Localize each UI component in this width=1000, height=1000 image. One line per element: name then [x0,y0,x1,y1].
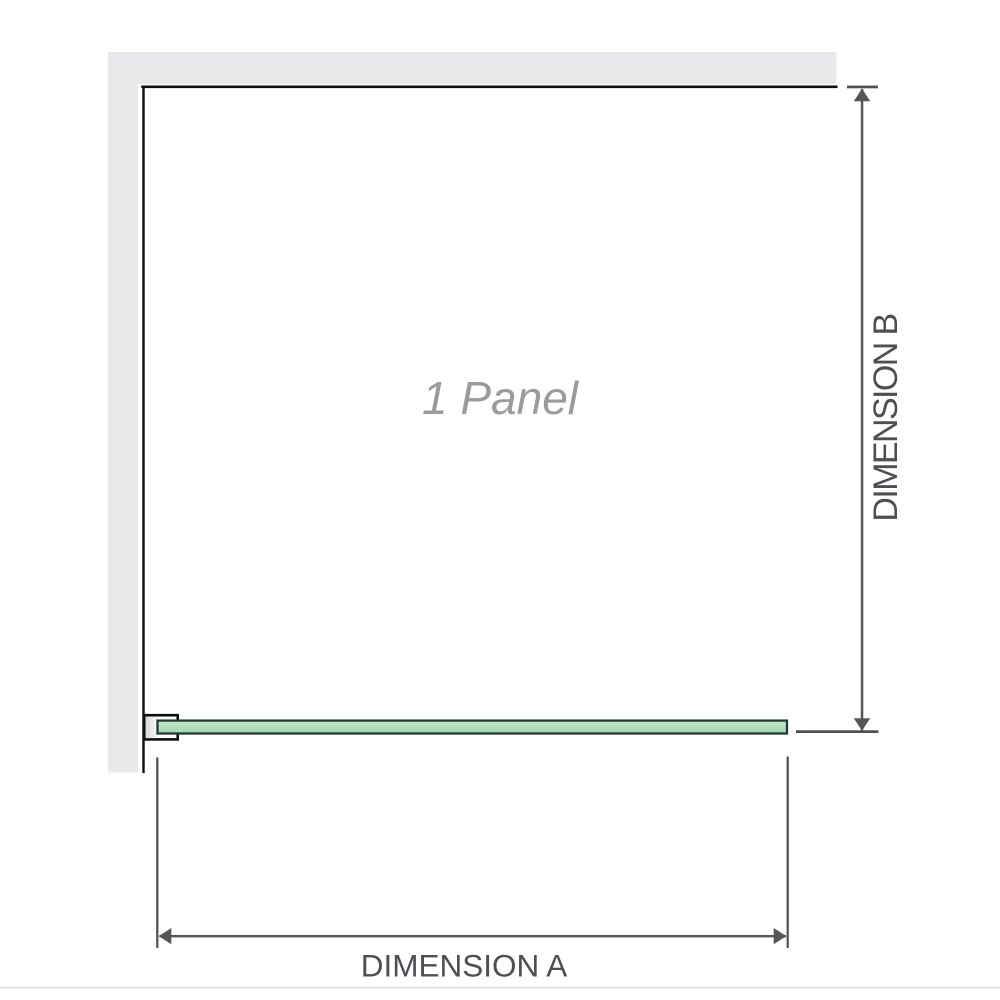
svg-text:DIMENSION B: DIMENSION B [867,314,905,521]
svg-text:1 Panel: 1 Panel [422,372,580,424]
svg-text:DIMENSION A: DIMENSION A [361,948,568,984]
